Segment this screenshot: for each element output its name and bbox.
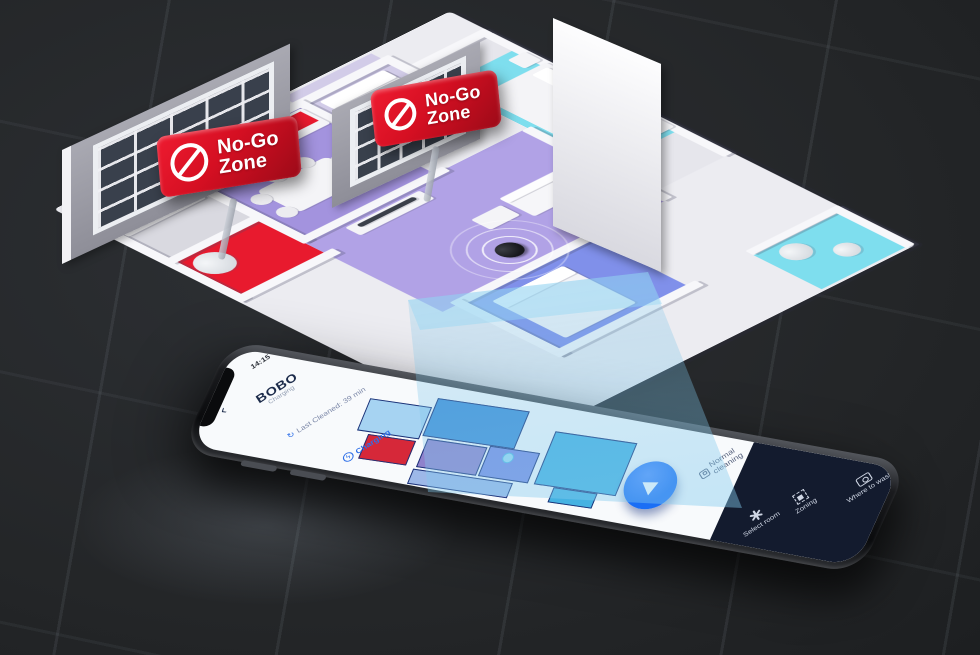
prohibition-icon [169,141,210,185]
nav-select-room[interactable]: Select room [735,500,781,539]
cleaning-mode-icon [698,467,711,479]
play-icon [643,476,662,496]
scene: No-GoZone No-GoZone 14:15 ‹ BOBO Chargin… [0,0,980,655]
back-chevron-icon: ‹ [217,403,228,416]
map-room [534,431,638,496]
nav-where-to-wash[interactable]: Where to wash [840,461,894,504]
sign-label: No-GoZone [216,128,281,178]
device-title-block: BOBO Charging [254,370,303,410]
sign-label: No-GoZone [424,82,483,128]
prohibition-icon [383,96,418,133]
status-time: 14:15 [249,353,272,371]
back-button[interactable]: ‹ [217,403,228,416]
nav-zoning[interactable]: Zoning [787,486,818,515]
map-room [478,446,540,484]
history-icon: ↻ [286,430,297,441]
